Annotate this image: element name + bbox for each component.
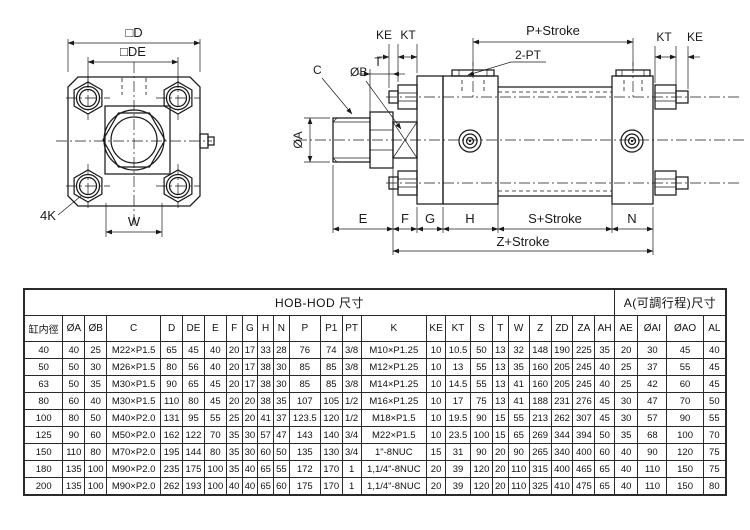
table-cell: 315	[529, 461, 551, 478]
table-cell: M22×P1.5	[361, 427, 427, 444]
dim-label-g: G	[425, 211, 435, 226]
dim-label-ke-right: KE	[687, 30, 703, 44]
column-header: ØB	[85, 316, 107, 342]
leader-line-c	[322, 78, 352, 114]
table-cell: 42	[638, 376, 667, 393]
table-cell: 60	[85, 427, 107, 444]
table-cell: 200	[24, 478, 63, 496]
table-cell: 205	[551, 376, 573, 393]
table-cell: 3/8	[342, 342, 361, 359]
table-cell: 74	[320, 342, 342, 359]
table-cell: 150	[667, 461, 703, 478]
table-cell: 40	[595, 359, 615, 376]
table-cell: 148	[529, 342, 551, 359]
table-cell: 55	[508, 410, 529, 427]
table-cell: 41	[508, 393, 529, 410]
table-cell: 120	[667, 444, 703, 461]
table-cell: 1/2	[342, 393, 361, 410]
dim-label-n: N	[627, 211, 636, 226]
table-cell: 35	[595, 342, 615, 359]
table-cell: 65	[508, 427, 529, 444]
head-tierod-nut-face	[459, 130, 481, 152]
table-cell: 340	[551, 444, 573, 461]
column-header: ØAO	[667, 316, 703, 342]
table-cell: 60	[274, 478, 290, 496]
table-cell: 37	[274, 410, 290, 427]
table-cell: 262	[551, 410, 573, 427]
table-cell: M14×P1.25	[361, 376, 427, 393]
table-cell: 50	[274, 444, 290, 461]
side-view: ØA C ØB T KE KT P+Stroke 2-PT	[291, 23, 746, 255]
table-cell: 105	[320, 393, 342, 410]
drawing-sheet: □D □DE W 4K	[0, 0, 750, 530]
dim-label-kt-right: KT	[656, 30, 672, 44]
table-cell: 55	[204, 410, 226, 427]
table-cell: 20	[614, 342, 637, 359]
table-cell: 140	[320, 427, 342, 444]
table-cell: 35	[226, 427, 242, 444]
table-cell: 20	[242, 393, 258, 410]
table-cell: 45	[703, 376, 726, 393]
table-cell: 400	[573, 444, 595, 461]
table-cell: 41	[508, 376, 529, 393]
dim-label-4k: 4K	[40, 208, 56, 223]
table-cell: 3/4	[342, 427, 361, 444]
table-cell: 38	[258, 359, 274, 376]
table-cell: 25	[614, 376, 637, 393]
column-header: ZD	[551, 316, 573, 342]
table-cell: 3/4	[342, 444, 361, 461]
dim-label-oa: ØA	[291, 131, 305, 148]
column-header: G	[242, 316, 258, 342]
table-cell: 225	[573, 342, 595, 359]
table-cell: 75	[471, 393, 493, 410]
table-cell: M22×P1.5	[107, 342, 161, 359]
table-cell: 85	[320, 376, 342, 393]
column-header: T	[492, 316, 508, 342]
table-cell: 150	[667, 478, 703, 496]
table-cell: 50	[63, 359, 85, 376]
column-header: DE	[183, 316, 205, 342]
table-cell: 307	[573, 410, 595, 427]
table-cell: 20	[427, 461, 446, 478]
dim-label-s-stroke: S+Stroke	[528, 211, 582, 226]
table-cell: 40	[614, 444, 637, 461]
table-cell: 90	[471, 444, 493, 461]
table-cell: 10	[427, 427, 446, 444]
table-cell: 394	[573, 427, 595, 444]
table-title-row: HOB-HOD 尺寸 A(可調行程)尺寸	[24, 289, 726, 316]
table-cell: 13	[492, 359, 508, 376]
column-header: C	[107, 316, 161, 342]
table-cell: 235	[161, 461, 183, 478]
table-cell: M30×P1.5	[107, 376, 161, 393]
table-cell: M26×P1.5	[107, 359, 161, 376]
table-cell: 65	[258, 461, 274, 478]
column-header: S	[471, 316, 493, 342]
table-cell: 47	[638, 393, 667, 410]
table-cell: 143	[289, 427, 320, 444]
table-cell: 172	[289, 461, 320, 478]
table-cell: 17	[446, 393, 471, 410]
table-cell: 23.5	[446, 427, 471, 444]
table-cell: 38	[258, 376, 274, 393]
table-row: 200135100M90×P2.026219310040406560175170…	[24, 478, 726, 496]
table-cell: 1,1/4"-8NUC	[361, 461, 427, 478]
table-cell: 245	[573, 376, 595, 393]
table-cell: 56	[183, 359, 205, 376]
table-cell: 80	[204, 444, 226, 461]
table-cell: 45	[204, 376, 226, 393]
table-cell: 57	[258, 427, 274, 444]
table-cell: 175	[183, 461, 205, 478]
table-cell: 20	[492, 478, 508, 496]
column-header: P	[289, 316, 320, 342]
table-cell: 100	[24, 410, 63, 427]
table-cell: 10	[427, 393, 446, 410]
table-cell: 35	[614, 427, 637, 444]
table-cell: 90	[161, 376, 183, 393]
table-cell: 135	[63, 478, 85, 496]
table-cell: 10.5	[446, 342, 471, 359]
table-cell: 55	[471, 376, 493, 393]
table-cell: 30	[242, 427, 258, 444]
table-cell: 40	[24, 342, 63, 359]
table-cell: 65	[258, 478, 274, 496]
table-cell: 90	[63, 427, 85, 444]
table-cell: 170	[320, 478, 342, 496]
table-cell: 25	[85, 342, 107, 359]
table-cell: 17	[242, 376, 258, 393]
table-cell: 30	[274, 376, 290, 393]
column-header: ØA	[63, 316, 85, 342]
table-cell: 110	[508, 461, 529, 478]
leader-line-2pt	[468, 62, 546, 75]
table-cell: 144	[183, 444, 205, 461]
table-cell: 90	[667, 410, 703, 427]
table-cell: 14.5	[446, 376, 471, 393]
table-cell: 10	[427, 359, 446, 376]
table-cell: 231	[551, 393, 573, 410]
table-cell: 41	[258, 410, 274, 427]
table-cell: 80	[183, 393, 205, 410]
table-cell: 262	[161, 478, 183, 496]
table-cell: 80	[85, 444, 107, 461]
table-cell: 160	[529, 359, 551, 376]
dim-label-w: W	[128, 214, 141, 229]
table-cell: 475	[573, 478, 595, 496]
table-cell: 65	[595, 461, 615, 478]
table-cell: 175	[289, 478, 320, 496]
table-cell: 35	[85, 376, 107, 393]
table-cell: 65	[183, 376, 205, 393]
table-cell: 40	[242, 461, 258, 478]
table-cell: 60	[258, 444, 274, 461]
table-cell: 135	[63, 461, 85, 478]
table-row: 806040M30×P1.51108045202038351071051/2M1…	[24, 393, 726, 410]
table-cell: M40×P2.0	[107, 410, 161, 427]
table-cell: 120	[320, 410, 342, 427]
table-row: 180135100M90×P2.023517510035406555172170…	[24, 461, 726, 478]
table-cell: 150	[24, 444, 63, 461]
dim-label-h: H	[465, 211, 474, 226]
table-cell: 50	[24, 359, 63, 376]
table-cell: 160	[529, 376, 551, 393]
table-cell: 55	[667, 359, 703, 376]
column-header: KT	[446, 316, 471, 342]
table-cell: 30	[614, 393, 637, 410]
dim-label-d: □D	[125, 25, 142, 40]
table-row: 404025M22×P1.56545402017332876743/8M10×P…	[24, 342, 726, 359]
table-cell: 30	[274, 359, 290, 376]
table-row: 1259060M50×P2.016212270353057471431403/4…	[24, 427, 726, 444]
column-header: PT	[342, 316, 361, 342]
table-row: 635035M30×P1.59065452017383085853/8M14×P…	[24, 376, 726, 393]
table-cell: 57	[638, 410, 667, 427]
table-cell: 85	[289, 359, 320, 376]
table-cell: 85	[289, 376, 320, 393]
table-cell: 13	[492, 376, 508, 393]
table-cell: 1"-8NUC	[361, 444, 427, 461]
table-cell: 45	[183, 342, 205, 359]
table-cell: 80	[703, 478, 726, 496]
corner-bolt	[156, 164, 200, 208]
table-cell: 45	[595, 393, 615, 410]
table-cell: 122	[183, 427, 205, 444]
table-cell: 17	[242, 359, 258, 376]
table-cell: 45	[703, 359, 726, 376]
table-cell: 32	[508, 342, 529, 359]
table-cell: 80	[161, 359, 183, 376]
front-view: □D □DE W 4K	[40, 25, 214, 237]
column-header: D	[161, 316, 183, 342]
table-cell: 15	[427, 444, 446, 461]
table-cell: 110	[508, 478, 529, 496]
table-cell: M90×P2.0	[107, 478, 161, 496]
table-header-row: 缸内徑ØAØBCDDEEFGHNPP1PTKKEKTSTWZZDZAAHAEØA…	[24, 316, 726, 342]
table-cell: 15	[492, 410, 508, 427]
table-row: 1008050M40×P2.0131955525204137123.51201/…	[24, 410, 726, 427]
table-cell: 68	[638, 427, 667, 444]
table-cell: 37	[638, 359, 667, 376]
table-cell: 10	[427, 410, 446, 427]
table-cell: 1	[342, 478, 361, 496]
table-cell: 39	[446, 478, 471, 496]
table-cell: 344	[551, 427, 573, 444]
table-cell: 100	[667, 427, 703, 444]
table-cell: 70	[667, 393, 703, 410]
dimension-table-wrap: HOB-HOD 尺寸 A(可調行程)尺寸 缸内徑ØAØBCDDEEFGHNPP1…	[23, 288, 727, 496]
table-cell: 100	[85, 478, 107, 496]
table-cell: 15	[492, 427, 508, 444]
table-cell: 50	[85, 410, 107, 427]
table-cell: 100	[471, 427, 493, 444]
table-cell: 40	[226, 478, 242, 496]
table-cell: 20	[226, 359, 242, 376]
table-cell: 17	[242, 342, 258, 359]
dim-label-p-stroke: P+Stroke	[526, 23, 580, 38]
technical-drawing: □D □DE W 4K	[0, 0, 750, 285]
table-cell: 70	[703, 427, 726, 444]
table-cell: 162	[161, 427, 183, 444]
table-cell: 276	[573, 393, 595, 410]
table-cell: 20	[492, 461, 508, 478]
table-cell: 20	[242, 410, 258, 427]
table-cell: 131	[161, 410, 183, 427]
table-cell: 50	[471, 342, 493, 359]
table-cell: 40	[703, 342, 726, 359]
table-cell: 110	[638, 478, 667, 496]
table-cell: 107	[289, 393, 320, 410]
table-cell: 25	[614, 359, 637, 376]
dim-label-2pt: 2-PT	[515, 48, 542, 62]
table-cell: 130	[320, 444, 342, 461]
table-cell: 65	[161, 342, 183, 359]
table-cell: 40	[242, 478, 258, 496]
table-cell: 65	[595, 478, 615, 496]
table-cell: 400	[551, 461, 573, 478]
table-cell: 10	[427, 376, 446, 393]
table-cell: 213	[529, 410, 551, 427]
table-cell: 35	[226, 461, 242, 478]
table-cell: 85	[320, 359, 342, 376]
column-header: E	[204, 316, 226, 342]
table-cell: 1,1/4"-8NUC	[361, 478, 427, 496]
head-port-boss	[452, 62, 494, 98]
table-cell: M30×P1.5	[107, 393, 161, 410]
table-cell: 55	[274, 461, 290, 478]
table-cell: M18×P1.5	[361, 410, 427, 427]
table-cell: 135	[289, 444, 320, 461]
table-title-main: HOB-HOD 尺寸	[24, 289, 614, 316]
table-cell: 110	[161, 393, 183, 410]
column-header: AE	[614, 316, 637, 342]
table-cell: 80	[24, 393, 63, 410]
table-cell: 25	[226, 410, 242, 427]
table-cell: 120	[471, 461, 493, 478]
table-cell: 75	[703, 444, 726, 461]
table-cell: 40	[614, 461, 637, 478]
table-cell: 30	[85, 359, 107, 376]
table-cell: 110	[63, 444, 85, 461]
table-cell: 50	[703, 393, 726, 410]
table-cell: 20	[226, 393, 242, 410]
table-cell: 35	[508, 359, 529, 376]
dim-label-e: E	[359, 211, 368, 226]
table-cell: 55	[703, 410, 726, 427]
table-cell: M90×P2.0	[107, 461, 161, 478]
table-cell: 20	[226, 342, 242, 359]
table-cell: 190	[551, 342, 573, 359]
table-cell: 45	[667, 342, 703, 359]
table-cell: M12×P1.25	[361, 359, 427, 376]
table-cell: 55	[471, 359, 493, 376]
table-cell: 20	[226, 376, 242, 393]
dim-label-c: C	[313, 63, 322, 77]
column-header: 缸内徑	[24, 316, 63, 342]
column-header: W	[508, 316, 529, 342]
column-header: K	[361, 316, 427, 342]
dim-label-de: □DE	[120, 44, 146, 59]
table-cell: 13	[492, 342, 508, 359]
table-cell: 110	[638, 461, 667, 478]
table-cell: M16×P1.25	[361, 393, 427, 410]
table-cell: 70	[204, 427, 226, 444]
table-cell: 100	[85, 461, 107, 478]
table-cell: 123.5	[289, 410, 320, 427]
dim-label-z-stroke: Z+Stroke	[496, 234, 549, 249]
table-body: 404025M22×P1.56545402017332876743/8M10×P…	[24, 342, 726, 496]
table-cell: 60	[595, 444, 615, 461]
table-cell: 90	[508, 444, 529, 461]
table-row: 15011080M70×P2.019514480353060501351303/…	[24, 444, 726, 461]
table-cell: 40	[63, 342, 85, 359]
table-cell: 95	[183, 410, 205, 427]
table-cell: 465	[573, 461, 595, 478]
column-header: P1	[320, 316, 342, 342]
table-cell: 205	[551, 359, 573, 376]
column-header: KE	[427, 316, 446, 342]
table-cell: 38	[258, 393, 274, 410]
table-cell: 90	[638, 444, 667, 461]
table-cell: 40	[85, 393, 107, 410]
column-header: ZA	[573, 316, 595, 342]
table-cell: 80	[63, 410, 85, 427]
table-cell: 76	[289, 342, 320, 359]
table-cell: 265	[529, 444, 551, 461]
table-cell: 63	[24, 376, 63, 393]
table-cell: 20	[427, 478, 446, 496]
table-cell: 90	[471, 410, 493, 427]
table-cell: 1/2	[342, 410, 361, 427]
table-cell: 40	[595, 376, 615, 393]
table-cell: 35	[274, 393, 290, 410]
table-cell: 40	[614, 478, 637, 496]
table-cell: 30	[242, 444, 258, 461]
table-cell: 20	[492, 444, 508, 461]
table-cell: 75	[703, 461, 726, 478]
cap-tierod-nut-face	[621, 130, 643, 152]
table-cell: 3/8	[342, 376, 361, 393]
table-cell: 40	[204, 359, 226, 376]
table-cell: 3/8	[342, 359, 361, 376]
table-cell: M10×P1.25	[361, 342, 427, 359]
table-row: 505030M26×P1.58056402017383085853/8M12×P…	[24, 359, 726, 376]
dim-label-ob: ØB	[350, 65, 367, 79]
table-cell: 410	[551, 478, 573, 496]
table-cell: 60	[63, 393, 85, 410]
dim-label-kt-left: KT	[400, 28, 416, 42]
table-cell: 120	[471, 478, 493, 496]
table-cell: 180	[24, 461, 63, 478]
table-cell: M50×P2.0	[107, 427, 161, 444]
table-cell: 245	[573, 359, 595, 376]
table-cell: 100	[204, 461, 226, 478]
table-cell: 39	[446, 461, 471, 478]
table-cell: 35	[226, 444, 242, 461]
table-cell: 13	[446, 359, 471, 376]
table-cell: 50	[63, 376, 85, 393]
table-cell: 125	[24, 427, 63, 444]
column-header: F	[226, 316, 242, 342]
table-cell: 10	[427, 342, 446, 359]
table-cell: 188	[529, 393, 551, 410]
table-cell: M70×P2.0	[107, 444, 161, 461]
table-cell: 195	[161, 444, 183, 461]
column-header: AH	[595, 316, 615, 342]
dim-label-ke-left: KE	[376, 28, 392, 42]
column-header: Z	[529, 316, 551, 342]
